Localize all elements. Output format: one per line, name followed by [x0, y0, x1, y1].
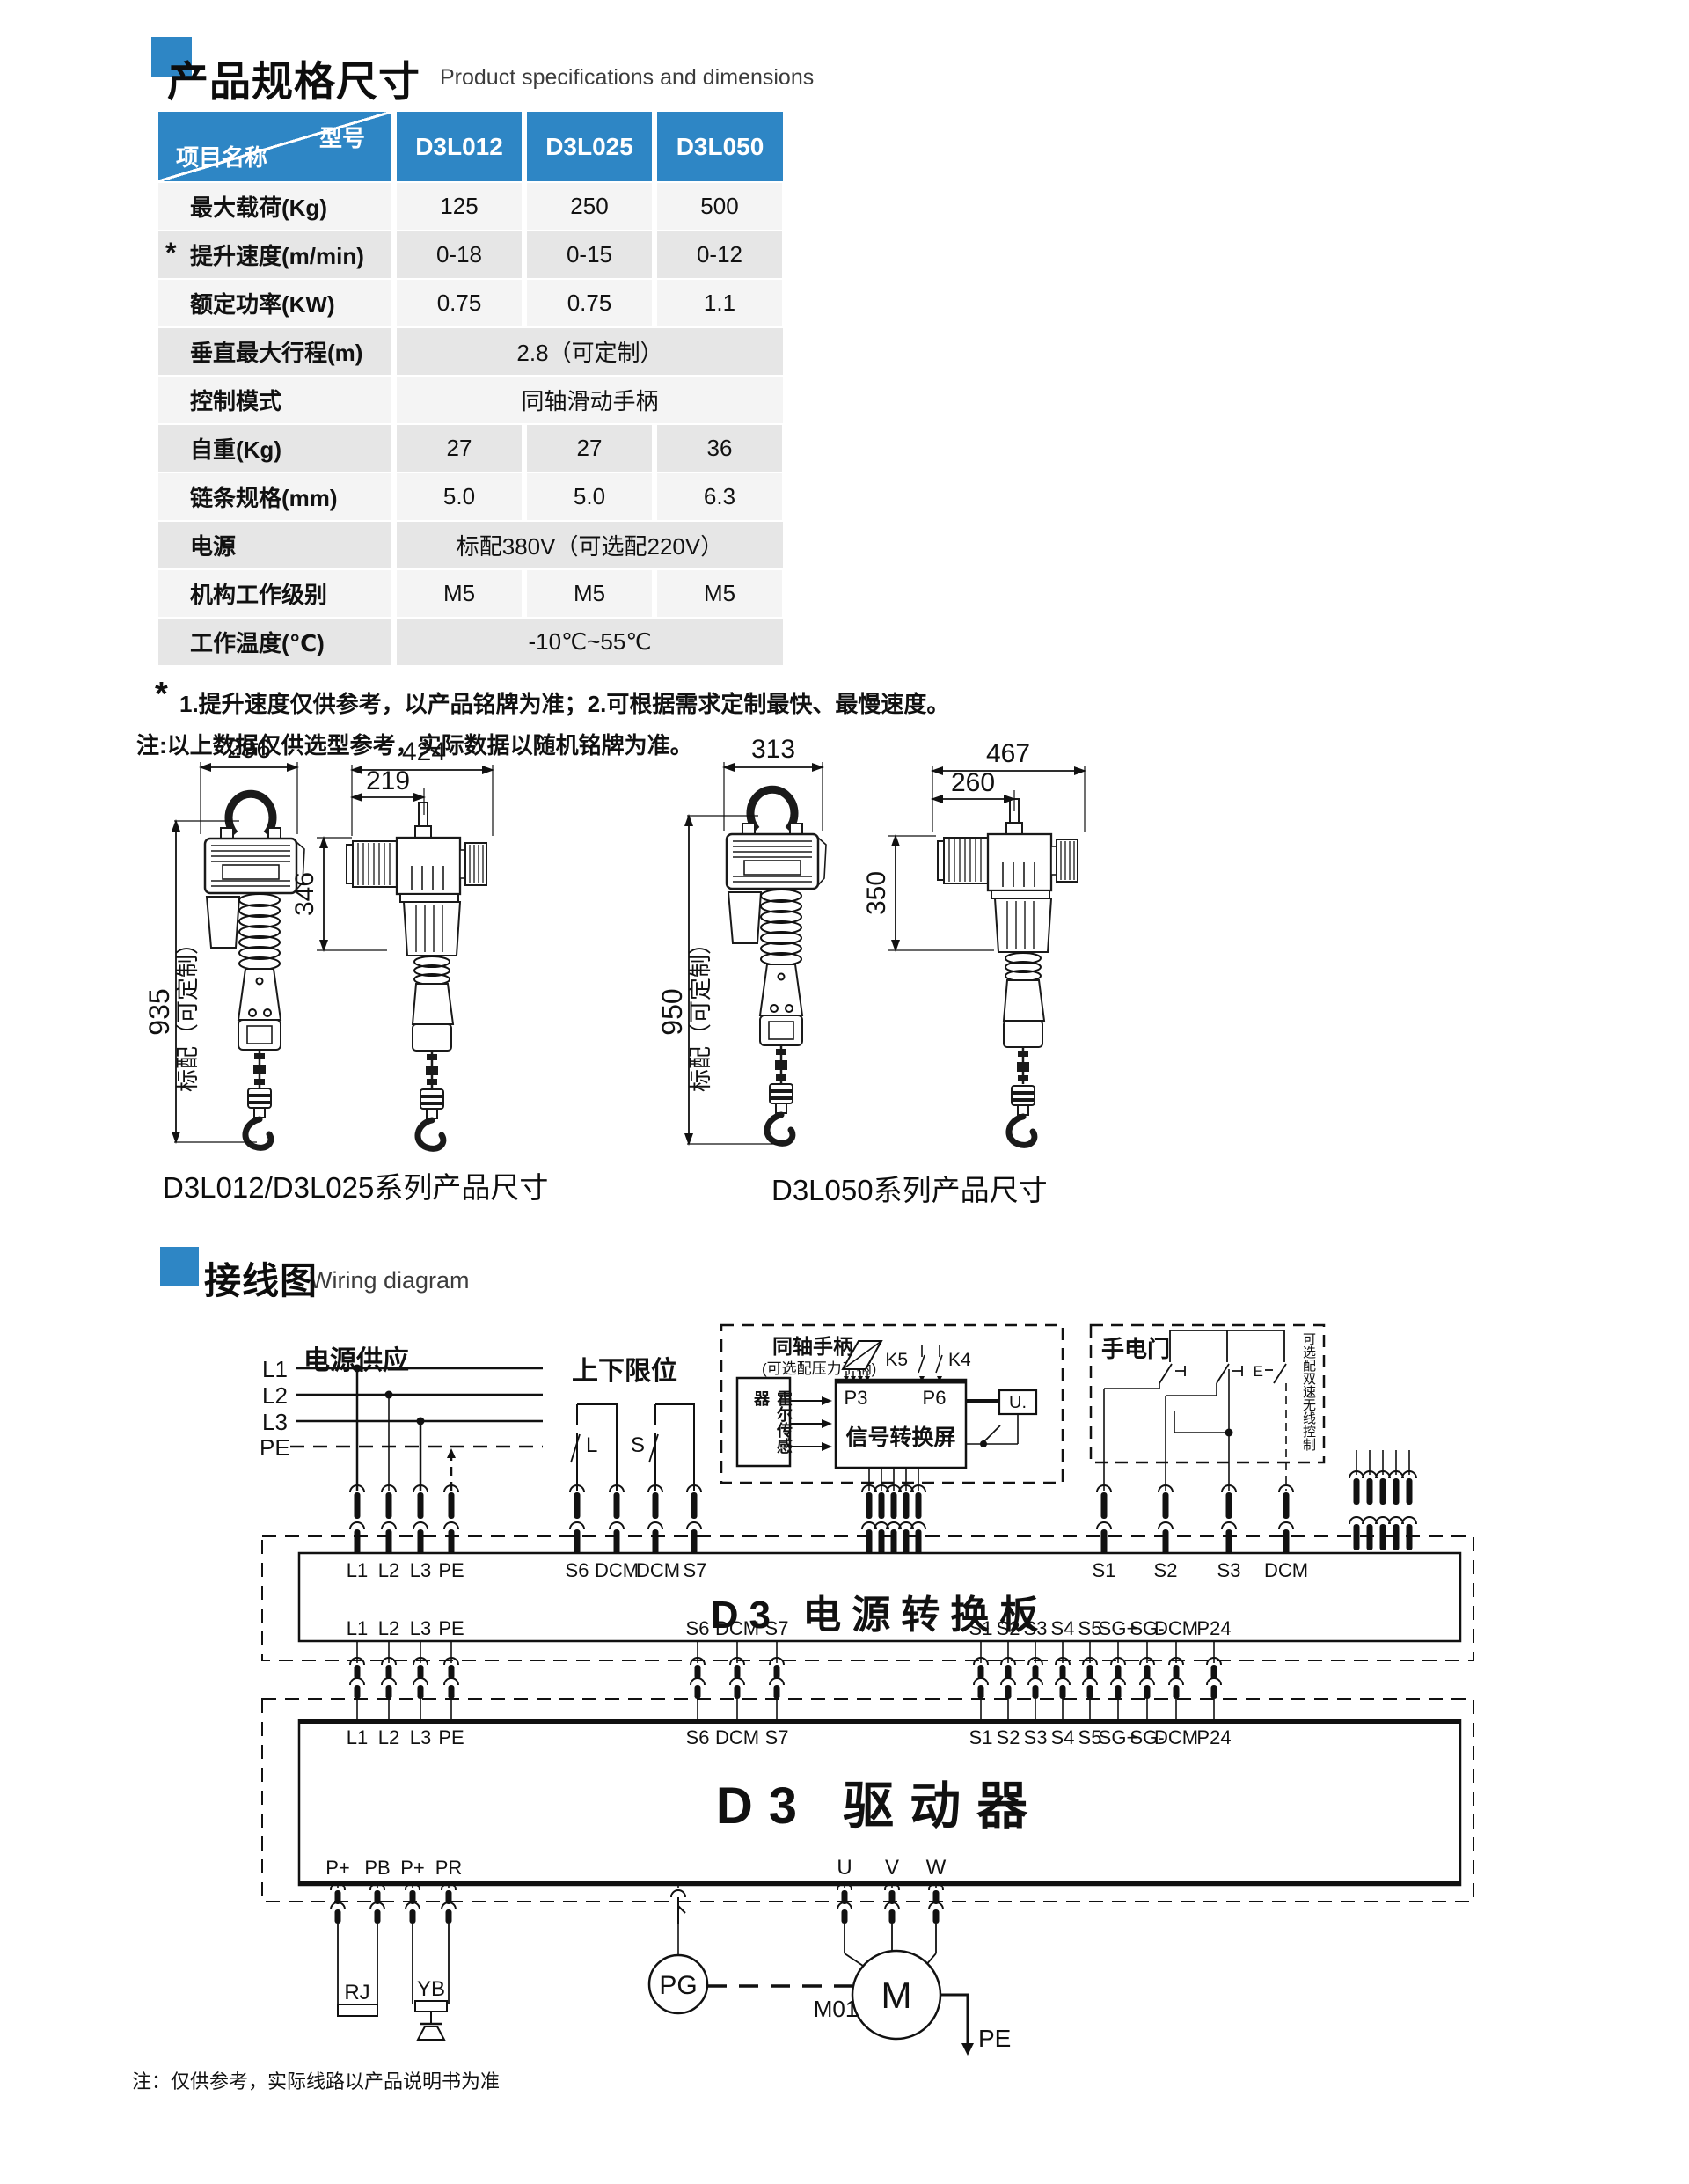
asterisk-mark: *: [165, 237, 176, 269]
table-row: 机构工作级别 M5 M5 M5: [158, 570, 783, 617]
cell-value: 0.75: [397, 280, 522, 326]
terminal-label: S2: [997, 1617, 1020, 1639]
table-row: 额定功率(KW) 0.75 0.75 1.1: [158, 280, 783, 326]
terminal-label: S2: [997, 1726, 1020, 1748]
p6-label: P6: [923, 1387, 947, 1409]
terminal-label: PE: [438, 1559, 464, 1581]
row-label: 机构工作级别: [158, 570, 391, 617]
dim-346: 346: [290, 872, 319, 916]
k4-label: K4: [948, 1350, 971, 1370]
row-label: 控制模式: [158, 377, 391, 423]
dim-296: 296: [227, 739, 271, 764]
terminal-label: S6: [686, 1617, 710, 1639]
line-label-l1: L1: [262, 1356, 288, 1382]
motor-circle: M M01 PE: [814, 1924, 1012, 2056]
yb-label: YB: [417, 1977, 445, 2001]
u-label: U.: [1009, 1393, 1027, 1412]
cell-value: 500: [657, 183, 782, 230]
terminal-label: L3: [410, 1559, 431, 1581]
terminal-label: DCM: [1154, 1617, 1198, 1639]
wiring-section-subtitle: Wiring diagram: [310, 1267, 470, 1294]
cell-value: 27: [397, 425, 522, 472]
terminal-label: S7: [765, 1617, 789, 1639]
k5-label: K5: [885, 1350, 908, 1370]
dim-260: 260: [951, 768, 995, 797]
terminal-label: L2: [378, 1617, 399, 1639]
column-header-model-3: D3L050: [657, 112, 783, 181]
table-row: 自重(Kg) 27 27 36: [158, 425, 783, 472]
driver-board-group: D3 驱动器 L1 L2 L3 PE S6 DCM S7 S1 S2 S3 S4…: [262, 1699, 1473, 1902]
product-spec-page: 产品规格尺寸 Product specifications and dimens…: [0, 0, 1689, 2184]
cell-value: 0-15: [527, 231, 652, 278]
terminal-label: P+: [325, 1857, 350, 1879]
p3-label: P3: [844, 1387, 868, 1409]
terminal-label: L1: [347, 1559, 368, 1581]
terminal-label: DCM: [1264, 1559, 1308, 1581]
terminal-label: PE: [438, 1617, 464, 1639]
terminal-label: DCM: [715, 1726, 759, 1748]
cell-value-span: 2.8（可定制）: [397, 328, 783, 375]
cell-value: 1.1: [657, 280, 782, 326]
terminal-label: DCM: [1154, 1726, 1198, 1748]
terminal-label: P+: [400, 1857, 425, 1879]
output-components-group: RJ YB PG: [331, 1883, 1011, 2056]
terminal-label: DCM: [715, 1617, 759, 1639]
terminal-label: PE: [438, 1726, 464, 1748]
dim-950: 950: [656, 988, 688, 1035]
drawing-caption-1: D3L012/D3L025系列产品尺寸: [163, 1164, 548, 1206]
row-label: 最大载荷(Kg): [158, 183, 391, 230]
terminal-label: P24: [1196, 1726, 1231, 1748]
drawing-caption-2: D3L050系列产品尺寸: [771, 1167, 1048, 1209]
driver-title: D3 驱动器: [716, 1777, 1043, 1835]
terminal-label: PR: [435, 1857, 463, 1879]
dimension-drawings: 296 424 219 346 935 标配（可定制）: [0, 739, 1689, 1214]
pg-label: PG: [659, 1971, 697, 2000]
pendant-e-label: E: [1254, 1363, 1263, 1380]
section-accent-square: [160, 1247, 199, 1286]
spec-table-corner-cell: 型号 项目名称: [158, 112, 391, 181]
motor-label: M: [881, 1975, 912, 2016]
terminal-label: S1: [1093, 1559, 1116, 1581]
spec-table: 型号 项目名称 D3L012 D3L025 D3L050 最大载荷(Kg) 12…: [158, 112, 783, 667]
wiring-diagram: 电源供应 L1 L2 L3 PE 上下限位 L S: [0, 1302, 1689, 2184]
hoist-front-view: [727, 789, 826, 1143]
table-row: 垂直最大行程(m) 2.8（可定制）: [158, 328, 783, 375]
cell-value: 125: [397, 183, 522, 230]
row-label: 自重(Kg): [158, 425, 391, 472]
speed-note: 1.提升速度仅供参考，以产品铭牌为准；2.可根据需求定制最快、最慢速度。: [179, 686, 949, 719]
rj-label: RJ: [344, 1981, 369, 2004]
terminal-label: S7: [765, 1726, 789, 1748]
dim-935: 935: [143, 988, 175, 1035]
line-label-l3: L3: [262, 1409, 288, 1435]
connector-row-top: [350, 1471, 1416, 1556]
rj-resistor: RJ: [338, 1924, 377, 2016]
terminal-label: S2: [1154, 1559, 1178, 1581]
hall-sensor-label: 霍尔传感器: [749, 1390, 795, 1466]
wiring-section-title: 接线图: [204, 1251, 318, 1305]
table-row: 最大载荷(Kg) 125 250 500: [158, 183, 783, 230]
row-label: 额定功率(KW): [158, 280, 391, 326]
pendant-title: 手电门: [1101, 1336, 1170, 1362]
terminal-label: DCM: [636, 1559, 680, 1581]
cell-value-span: 标配380V（可选配220V）: [397, 522, 783, 568]
corner-label-item: 项目名称: [176, 140, 267, 172]
row-label: 工作温度(℃): [158, 619, 391, 665]
wireless-option-label: 可选配双速无线控制: [1299, 1332, 1318, 1464]
hoist-side-view: [347, 803, 486, 1148]
table-row: * 提升速度(m/min) 0-18 0-15 0-12: [158, 231, 783, 278]
cell-value-span: 同轴滑动手柄: [397, 377, 783, 423]
dim-313: 313: [751, 739, 795, 764]
yb-brake: YB: [413, 1924, 449, 2040]
line-label-pe: PE: [260, 1434, 290, 1461]
column-header-model-2: D3L025: [527, 112, 652, 181]
row-label: 链条规格(mm): [158, 473, 391, 520]
terminal-label: PB: [364, 1857, 390, 1879]
terminal-label: S3: [1024, 1726, 1048, 1748]
cell-value: 0-12: [657, 231, 782, 278]
cell-value: 5.0: [397, 473, 522, 520]
corner-label-model: 型号: [319, 121, 365, 153]
table-row: 工作温度(℃) -10℃~55℃: [158, 619, 783, 665]
cell-value: 0-18: [397, 231, 522, 278]
terminal-label: L1: [347, 1726, 368, 1748]
cell-value: 6.3: [657, 473, 782, 520]
terminal-label: S4: [1051, 1726, 1075, 1748]
cell-value: 5.0: [527, 473, 652, 520]
hoist-drawing-group-2: 313 467 260 350 950 标配（可定制）: [656, 739, 1085, 1145]
terminal-label: L2: [378, 1559, 399, 1581]
row-label: * 提升速度(m/min): [158, 231, 391, 278]
dim-935-note: 标配（可定制）: [174, 932, 201, 1092]
pe-tap-arrow: [447, 1448, 456, 1458]
terminal-label: S6: [686, 1726, 710, 1748]
dim-424: 424: [402, 739, 446, 766]
cell-value: M5: [657, 570, 782, 617]
dim-350: 350: [862, 871, 891, 915]
terminal-label: W: [926, 1856, 947, 1880]
cell-value: 0.75: [527, 280, 652, 326]
power-supply-group: 电源供应 L1 L2 L3 PE: [260, 1345, 543, 1491]
line-label-l2: L2: [262, 1382, 288, 1409]
handle-title: 同轴手柄: [772, 1335, 853, 1358]
column-header-model-1: D3L012: [397, 112, 522, 181]
hoist-side-view: [938, 799, 1078, 1145]
cell-value: 250: [527, 183, 652, 230]
row-label-text: 提升速度(m/min): [190, 238, 364, 271]
terminal-label: S1: [969, 1617, 993, 1639]
hoist-front-view: [205, 794, 304, 1147]
power-board-group: D3 电源转换板 L1 L2 L3 PE S6 DCM DCM S7 S1 S2…: [262, 1536, 1473, 1660]
terminal-label: S3: [1217, 1559, 1241, 1581]
connector-row-middle: [350, 1641, 1221, 1720]
terminal-label: S3: [1024, 1617, 1048, 1639]
note-asterisk: *: [155, 676, 168, 714]
row-label: 电源: [158, 522, 391, 568]
cell-value-span: -10℃~55℃: [397, 619, 783, 665]
terminal-label: S7: [684, 1559, 707, 1581]
cell-value: M5: [397, 570, 522, 617]
dim-219: 219: [366, 766, 410, 795]
spec-section-title: 产品规格尺寸: [167, 48, 420, 108]
limit-sw2-label: S: [631, 1433, 645, 1457]
dim-467: 467: [986, 739, 1030, 768]
terminal-label: S6: [566, 1559, 589, 1581]
motor-id-label: M01: [814, 1996, 859, 2022]
terminal-label: V: [885, 1856, 899, 1880]
limit-title: 上下限位: [572, 1356, 677, 1386]
table-row: 电源 标配380V（可选配220V）: [158, 522, 783, 568]
terminal-label: S1: [969, 1726, 993, 1748]
table-row: 控制模式 同轴滑动手柄: [158, 377, 783, 423]
terminal-label: P24: [1196, 1617, 1231, 1639]
terminal-label: L3: [410, 1617, 431, 1639]
row-label: 垂直最大行程(m): [158, 328, 391, 375]
pg-connector: [671, 1890, 685, 1924]
terminal-label: U: [837, 1856, 852, 1880]
terminal-label: L3: [410, 1726, 431, 1748]
spec-table-header-row: 型号 项目名称 D3L012 D3L025 D3L050: [158, 112, 783, 181]
table-row: 链条规格(mm) 5.0 5.0 6.3: [158, 473, 783, 520]
cell-value: M5: [527, 570, 652, 617]
terminal-label: L2: [378, 1726, 399, 1748]
wiring-note: 注：仅供参考，实际线路以产品说明书为准: [132, 2066, 500, 2094]
hoist-drawing-group-1: 296 424 219 346 935 标配（可定制）: [143, 739, 493, 1148]
limit-sw1-label: L: [586, 1433, 597, 1457]
cell-value: 36: [657, 425, 782, 472]
cell-value: 27: [527, 425, 652, 472]
terminal-label: DCM: [595, 1559, 639, 1581]
limit-switch-group: 上下限位 L S: [571, 1356, 694, 1491]
signal-screen-label: 信号转换屏: [845, 1425, 955, 1450]
spec-section-subtitle: Product specifications and dimensions: [440, 65, 814, 91]
dim-950-note: 标配（可定制）: [687, 932, 713, 1092]
motor-pe-label: PE: [978, 2025, 1011, 2052]
pendant-box: 手电门 E: [1091, 1325, 1324, 1491]
terminal-label: S4: [1051, 1617, 1075, 1639]
terminal-label: L1: [347, 1617, 368, 1639]
